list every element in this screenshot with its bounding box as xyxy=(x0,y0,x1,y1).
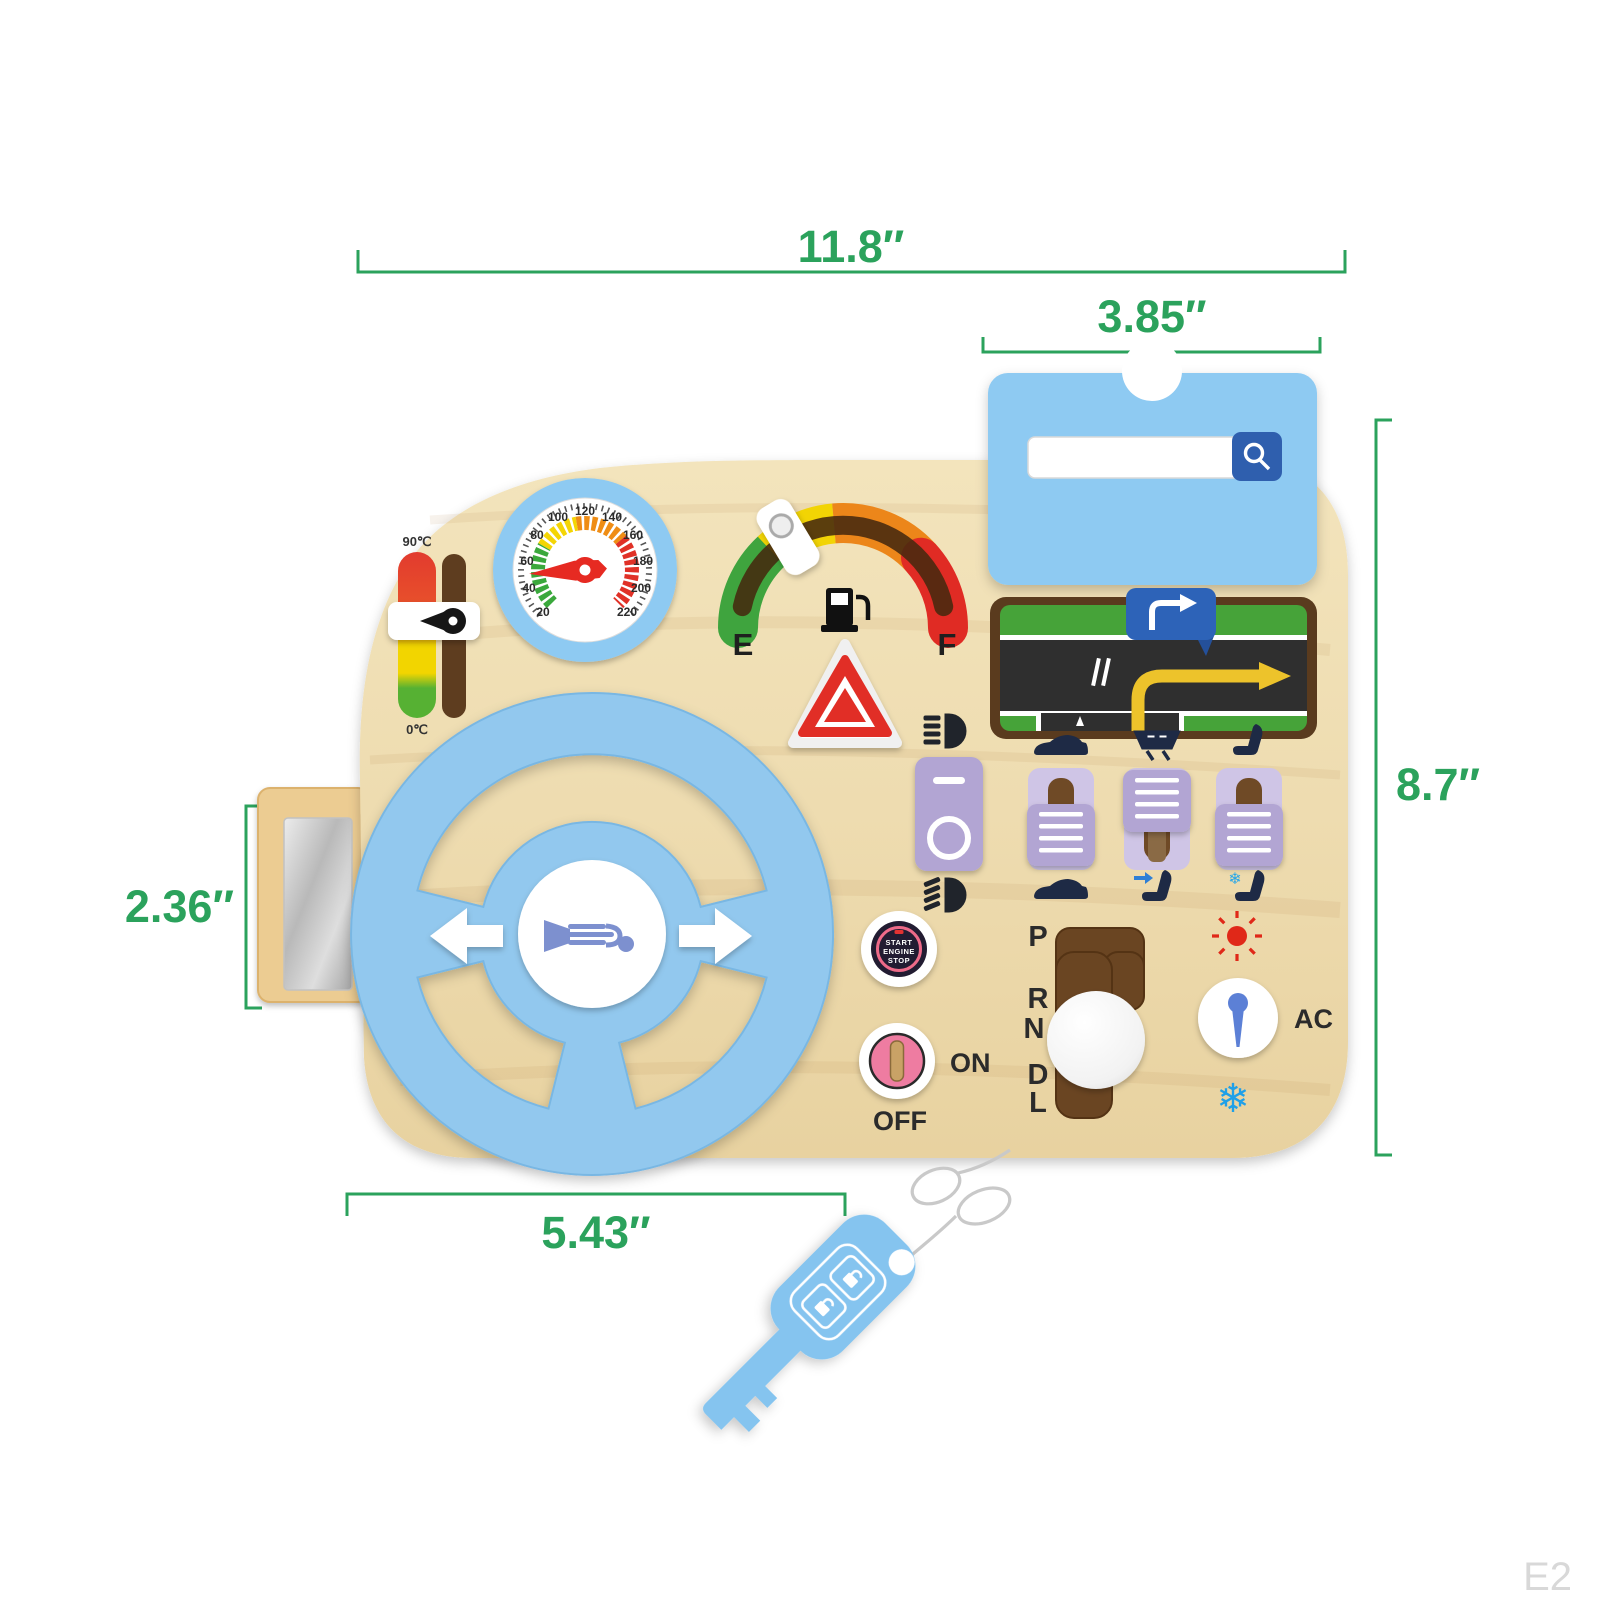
navigation-map xyxy=(990,588,1317,739)
speedo-tick: 60 xyxy=(520,554,534,568)
dimension-label-panel-width: 3.85″ xyxy=(1097,291,1206,342)
dimension-label-wheel-width: 5.43″ xyxy=(541,1207,650,1258)
dimension-line-board-height xyxy=(1376,420,1392,1155)
speedometer: 20 40 60 80 100 120 140 160 180 200 220 xyxy=(493,478,677,662)
dimension-label-mirror-height: 2.36″ xyxy=(125,881,234,932)
speedo-tick: 180 xyxy=(633,554,653,568)
speedo-tick: 160 xyxy=(623,528,643,542)
speedo-tick: 20 xyxy=(536,605,550,619)
map-road-edge xyxy=(1036,713,1041,733)
start-button-label: START xyxy=(886,938,913,947)
slider-handle[interactable] xyxy=(1123,770,1191,832)
start-button-indicator xyxy=(895,930,904,934)
gear-label-n: N xyxy=(1024,1013,1045,1045)
speedo-tick: 80 xyxy=(530,528,544,542)
search-button[interactable] xyxy=(1232,432,1282,481)
ignition-switch[interactable] xyxy=(859,1023,935,1099)
start-engine-button[interactable]: START ENGINE STOP xyxy=(861,911,937,987)
slider-handle[interactable] xyxy=(1215,804,1283,866)
car-key[interactable] xyxy=(679,1202,928,1451)
map-side-road xyxy=(1041,713,1179,733)
turn-sign-plate xyxy=(1126,588,1216,640)
ignition-off-label: OFF xyxy=(873,1106,927,1136)
speedo-tick: 220 xyxy=(617,605,637,619)
temperature-max-label: 90℃ xyxy=(402,534,431,549)
key-string xyxy=(906,1150,1015,1260)
phone-notch xyxy=(1122,341,1182,401)
product-diagram: 11.8″ 3.85″ 8.7″ 2.36″ 5.43″ 90℃ 0℃ xyxy=(0,0,1600,1600)
ac-dial[interactable] xyxy=(1198,978,1278,1058)
fuel-empty-label: E xyxy=(733,627,754,662)
snowflake-icon: ❄ xyxy=(1216,1077,1250,1121)
dimension-label-board-height: 8.7″ xyxy=(1396,759,1480,810)
key-slot[interactable] xyxy=(891,1041,904,1081)
map-road-edge xyxy=(1179,713,1184,733)
gear-label-l: L xyxy=(1029,1087,1047,1119)
start-button-label: ENGINE xyxy=(883,947,915,956)
dimension-label-board-width: 11.8″ xyxy=(798,221,905,272)
horn-button[interactable] xyxy=(518,860,666,1008)
speedo-tick: 140 xyxy=(602,510,622,524)
fuel-full-label: F xyxy=(938,627,957,662)
phone-panel xyxy=(988,341,1317,585)
temperature-min-label: 0℃ xyxy=(406,722,428,737)
gear-label-r: R xyxy=(1028,983,1049,1015)
speedo-tick: 40 xyxy=(522,581,536,595)
snowflake-glyph: ❄ xyxy=(1228,871,1241,888)
temperature-slider-handle[interactable] xyxy=(388,602,480,640)
slider-handle[interactable] xyxy=(1027,804,1095,866)
ac-label: AC xyxy=(1294,1004,1333,1034)
start-button-label: STOP xyxy=(888,956,910,965)
search-input[interactable] xyxy=(1028,437,1241,478)
speedo-tick: 120 xyxy=(575,504,595,518)
headlight-rocker-switch[interactable] xyxy=(915,757,983,871)
temperature-pointer-center xyxy=(449,617,458,626)
shifter-knob[interactable] xyxy=(1047,991,1145,1089)
ignition-on-label: ON xyxy=(950,1048,991,1078)
watermark: E2 xyxy=(1523,1555,1572,1599)
speedo-tick: 200 xyxy=(631,581,651,595)
speedo-tick: 100 xyxy=(548,510,568,524)
mirror-glass xyxy=(284,818,352,990)
gear-label-p: P xyxy=(1028,921,1047,953)
